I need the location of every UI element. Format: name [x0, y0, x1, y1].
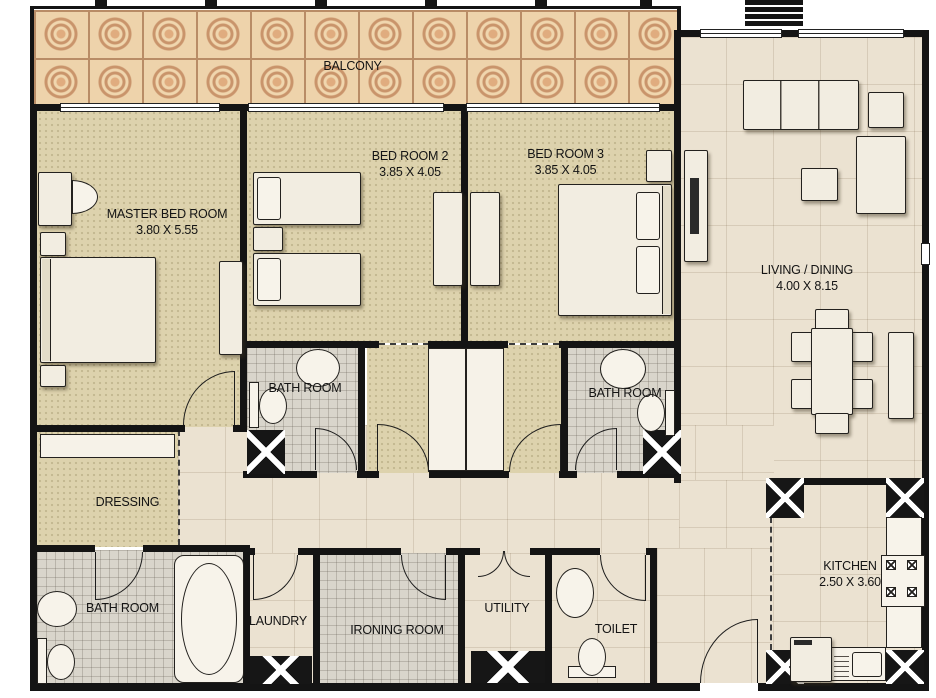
wall: [530, 548, 600, 555]
room-label-kitchen: KITCHEN 2.50 X 3.60: [794, 558, 906, 590]
pillow: [636, 246, 660, 294]
room-name: BATH ROOM: [65, 600, 180, 616]
room-label-laundry: LAUNDRY: [244, 613, 312, 629]
room-label-bedroom-2: BED ROOM 2 3.85 X 4.05: [320, 148, 500, 180]
wall: [561, 345, 568, 478]
room-name: BATH ROOM: [255, 380, 355, 396]
wall: [428, 341, 508, 348]
side-table: [868, 92, 904, 128]
dressing-cupboard: [40, 434, 175, 458]
toilet-bowl: [578, 638, 606, 676]
wall: [561, 471, 577, 478]
wall: [313, 548, 320, 690]
wardrobe: [428, 348, 466, 471]
railing-post: [95, 0, 107, 8]
drainboard: [834, 652, 849, 677]
room-label-balcony: BALCONY: [295, 58, 410, 74]
room-dims: 2.50 X 3.60: [794, 574, 906, 590]
room-label-master-bedroom: MASTER BED ROOM 3.80 X 5.55: [72, 206, 262, 238]
railing-post: [315, 0, 327, 8]
dining-chair: [815, 413, 849, 434]
coffee-table: [801, 168, 838, 201]
room-name: MASTER BED ROOM: [72, 206, 262, 222]
wash-basin: [600, 349, 646, 389]
sofa: [743, 80, 859, 130]
room-dims: 3.85 X 4.05: [478, 162, 653, 178]
wardrobe: [470, 192, 500, 286]
room-label-ironing-room: IRONING ROOM: [327, 622, 467, 638]
railing-post: [640, 0, 652, 8]
toilet-tank: [37, 638, 47, 684]
room-label-bathroom-3: BATH ROOM: [575, 385, 675, 401]
headboard: [662, 186, 671, 314]
room-label-bathroom-2: BATH ROOM: [255, 380, 355, 396]
pillow: [636, 192, 660, 240]
window: [798, 29, 904, 38]
dining-chair: [851, 332, 873, 362]
room-name: UTILITY: [467, 600, 547, 616]
kitchen-counter: [886, 606, 922, 648]
wall: [650, 548, 657, 690]
window: [921, 243, 930, 265]
bedroom-3-open-boundary: [509, 343, 559, 345]
room-name: IRONING ROOM: [327, 622, 467, 638]
wash-basin: [556, 568, 594, 618]
headboard: [42, 259, 51, 361]
room-label-dressing: DRESSING: [70, 494, 185, 510]
dining-chair: [851, 379, 873, 409]
tv-cabinet: [219, 261, 243, 355]
wall: [357, 471, 369, 478]
balcony-railing: [30, 6, 681, 9]
wardrobe: [466, 348, 504, 471]
bathtub-basin: [181, 563, 237, 675]
room-dims: 4.00 X 8.15: [717, 278, 897, 294]
bedroom-2-open-boundary: [379, 343, 429, 345]
wall: [30, 6, 34, 106]
column: [247, 430, 285, 474]
kitchen-open-boundary: [770, 517, 772, 650]
room-name: TOILET: [572, 621, 660, 637]
railing-post: [205, 0, 217, 8]
wall: [429, 471, 509, 478]
room-dims: 3.85 X 4.05: [320, 164, 500, 180]
window: [60, 103, 220, 112]
armchair: [856, 136, 906, 214]
washer-block: [250, 656, 312, 684]
railing-post: [425, 0, 437, 8]
column: [886, 650, 924, 684]
kitchen-sink: [852, 652, 882, 677]
burner-icon: [907, 560, 917, 570]
dressing-open-boundary: [178, 430, 180, 545]
dining-chair: [791, 332, 813, 362]
entry-opening: [700, 683, 758, 691]
room-name: BATH ROOM: [575, 385, 675, 401]
wall: [233, 425, 245, 432]
wall: [559, 341, 681, 348]
column: [766, 478, 804, 518]
window: [466, 103, 660, 112]
room-dims: 3.80 X 5.55: [72, 222, 262, 238]
room-label-toilet: TOILET: [572, 621, 660, 637]
wall: [143, 545, 245, 552]
wardrobe: [433, 192, 463, 286]
room-label-master-bathroom: BATH ROOM: [65, 600, 180, 616]
dining-chair: [791, 379, 813, 409]
wall: [30, 425, 185, 432]
room-name: LIVING / DINING: [717, 262, 897, 278]
floor-plan: BALCONY MASTER BED ROOM 3.80 X 5.55 BED …: [0, 0, 936, 698]
service-duct: [745, 0, 803, 26]
nightstand: [40, 232, 66, 256]
wall: [30, 104, 37, 690]
room-name: LAUNDRY: [244, 613, 312, 629]
column: [886, 478, 924, 518]
fridge-handle: [794, 640, 812, 645]
room-name: BALCONY: [295, 58, 410, 74]
dresser: [38, 172, 72, 226]
room-name: BED ROOM 3: [478, 146, 653, 162]
wall: [30, 545, 95, 552]
column: [643, 430, 681, 474]
window: [700, 29, 782, 38]
room-label-living-dining: LIVING / DINING 4.00 X 8.15: [717, 262, 897, 294]
console-table: [888, 332, 914, 419]
window: [248, 103, 444, 112]
wall: [802, 478, 886, 485]
pillow: [257, 258, 281, 301]
master-bed: [40, 257, 156, 363]
tv-screen: [690, 178, 699, 234]
wall: [30, 683, 929, 691]
room-label-bedroom-3: BED ROOM 3 3.85 X 4.05: [478, 146, 653, 178]
room-label-utility: UTILITY: [467, 600, 547, 616]
railing-post: [535, 0, 547, 8]
room-name: BED ROOM 2: [320, 148, 500, 164]
dining-chair: [815, 309, 849, 330]
column: [471, 651, 545, 683]
wall: [458, 548, 465, 690]
room-name: KITCHEN: [794, 558, 906, 574]
room-name: DRESSING: [70, 494, 185, 510]
nightstand: [40, 365, 66, 387]
kitchen-counter: [886, 517, 922, 557]
wall: [674, 37, 681, 483]
wall: [545, 548, 552, 690]
wall: [358, 345, 365, 478]
toilet-bowl: [47, 644, 75, 680]
burner-icon: [907, 587, 917, 597]
dining-table: [811, 328, 853, 415]
